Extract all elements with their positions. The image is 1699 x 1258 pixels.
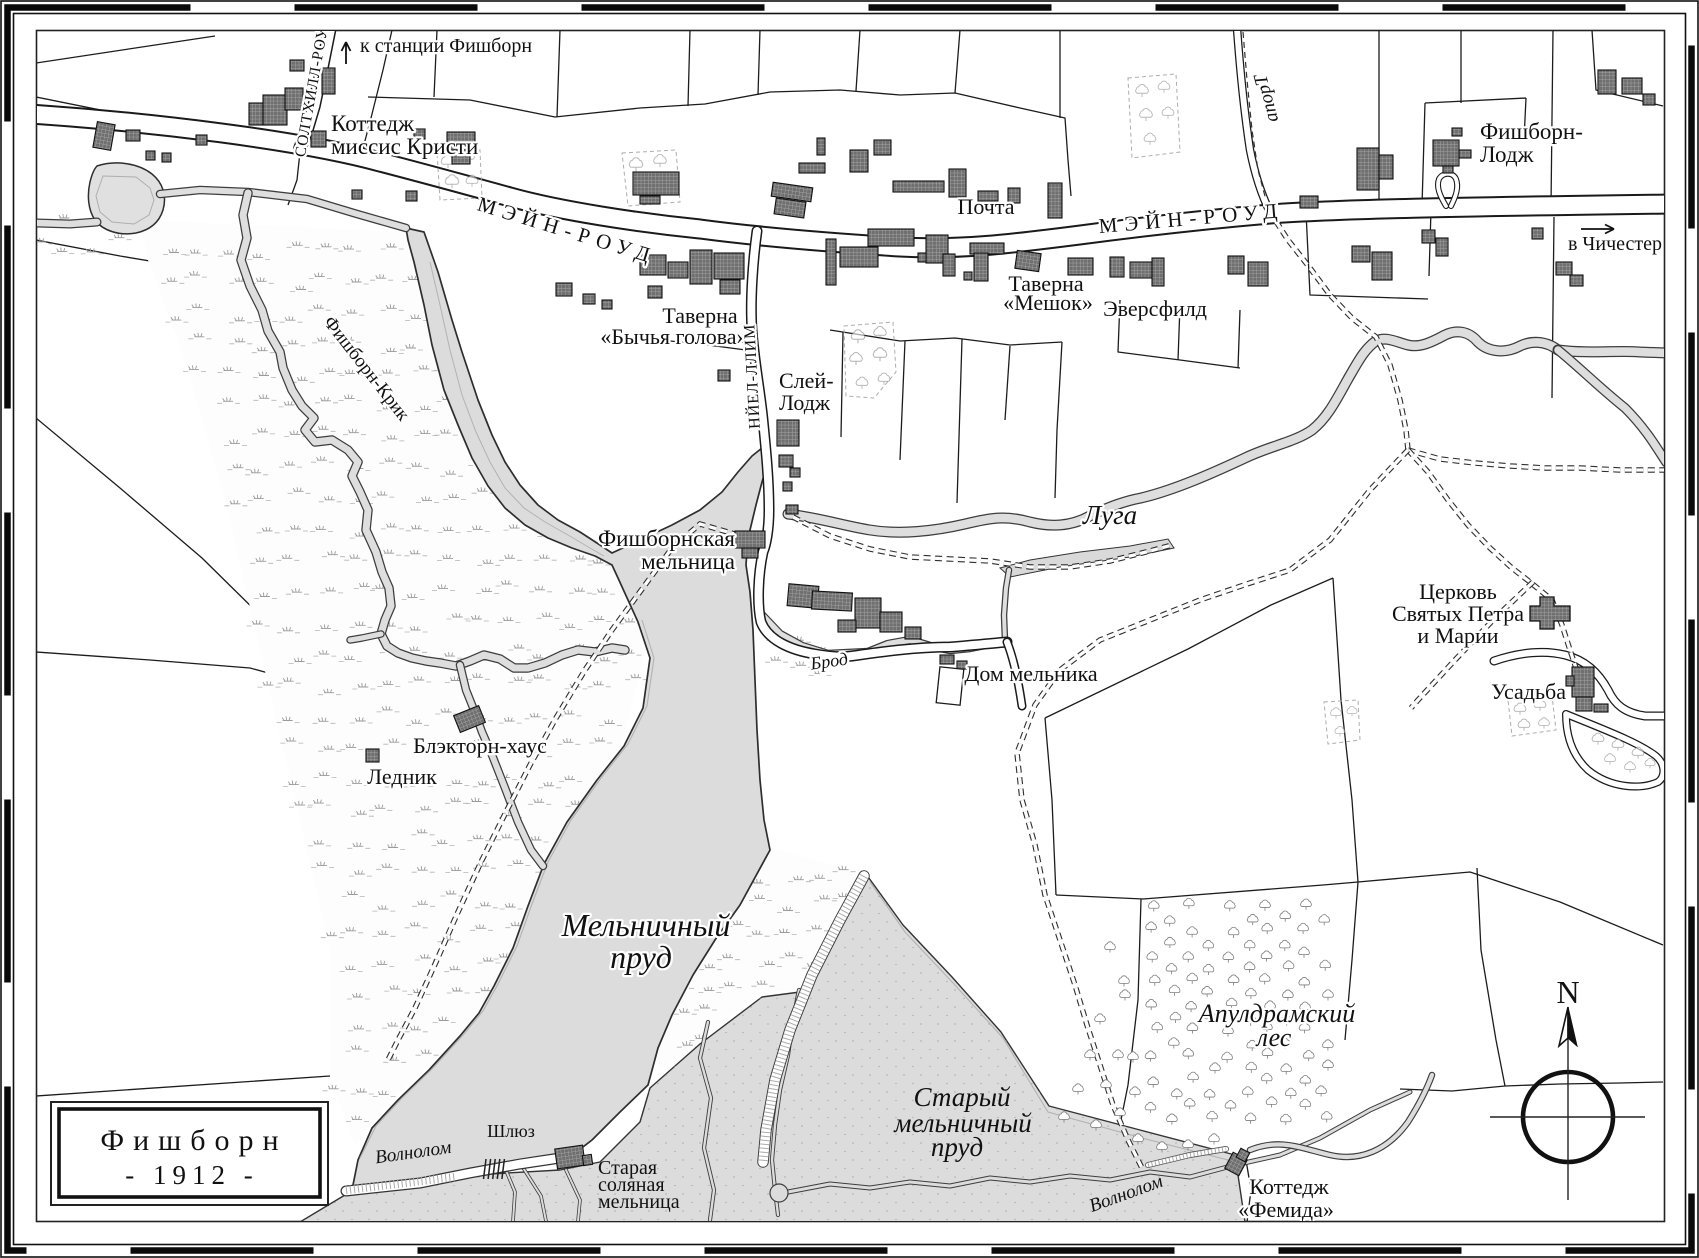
svg-text:Почта: Почта	[957, 194, 1014, 219]
svg-text:Коттедж: Коттедж	[1249, 1174, 1329, 1199]
svg-text:N: N	[1556, 974, 1579, 1010]
svg-text:мельница: мельница	[641, 549, 735, 574]
svg-text:«Мешок»: «Мешок»	[1003, 290, 1093, 315]
svg-text:Блэкторн-хаус: Блэкторн-хаус	[413, 733, 547, 758]
svg-text:лес: лес	[1255, 1023, 1292, 1052]
svg-text:Фишборнская: Фишборнская	[598, 526, 735, 551]
svg-text:- 1912 -: - 1912 -	[125, 1160, 258, 1190]
svg-text:в Чичестер: в Чичестер	[1568, 233, 1662, 255]
svg-text:Коттедж: Коттедж	[331, 111, 414, 136]
svg-text:«Фемида»: «Фемида»	[1238, 1197, 1334, 1222]
svg-text:Лодж: Лодж	[1480, 142, 1534, 167]
svg-text:Дом мельника: Дом мельника	[964, 661, 1098, 686]
svg-text:Фишборн-: Фишборн-	[1480, 119, 1583, 144]
svg-text:Ледник: Ледник	[367, 764, 437, 789]
svg-text:Лодж: Лодж	[779, 390, 831, 415]
svg-text:мельница: мельница	[598, 1191, 680, 1213]
svg-text:«Бычья голова»: «Бычья голова»	[600, 324, 747, 349]
svg-text:Фишборн: Фишборн	[100, 1124, 287, 1157]
svg-text:пруд: пруд	[610, 939, 672, 975]
svg-text:к станции Фишборн: к станции Фишборн	[360, 35, 532, 57]
svg-text:Эверсфилд: Эверсфилд	[1103, 296, 1207, 321]
svg-text:Шлюз: Шлюз	[487, 1121, 535, 1141]
svg-text:Мельничный: Мельничный	[561, 907, 731, 943]
svg-text:пруд: пруд	[931, 1132, 983, 1162]
svg-text:Усадьба: Усадьба	[1491, 679, 1566, 704]
svg-text:миссис Кристи: миссис Кристи	[331, 134, 478, 159]
svg-text:Луга: Луга	[1082, 500, 1137, 530]
svg-text:и Марии: и Марии	[1417, 623, 1498, 648]
